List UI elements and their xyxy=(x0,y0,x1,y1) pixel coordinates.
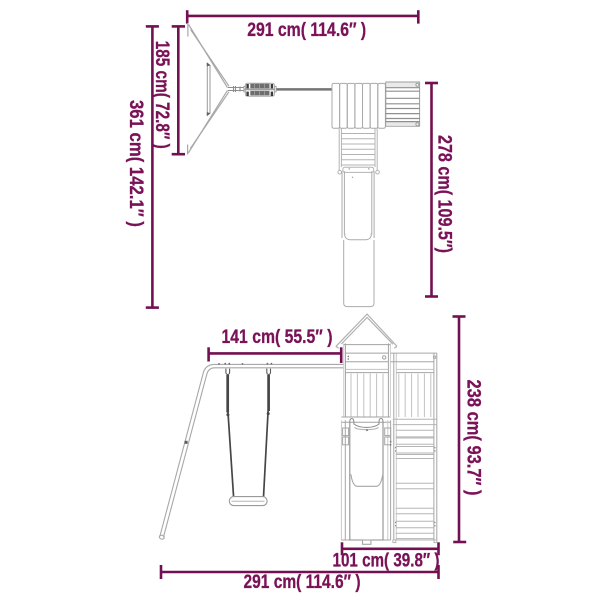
svg-text:291 cm( 114.6″ ): 291 cm( 114.6″ ) xyxy=(244,571,361,593)
svg-text:101 cm( 39.8″ ): 101 cm( 39.8″ ) xyxy=(333,550,440,572)
svg-text:141 cm( 55.5″ ): 141 cm( 55.5″ ) xyxy=(222,326,333,348)
svg-text:238 cm( 93.7″ ): 238 cm( 93.7″ ) xyxy=(463,380,485,496)
svg-text:361 cm( 142.1″ ): 361 cm( 142.1″ ) xyxy=(125,100,147,227)
svg-text:291 cm( 114.6″ ): 291 cm( 114.6″ ) xyxy=(247,19,366,41)
svg-text:185 cm( 72.8″ ): 185 cm( 72.8″ ) xyxy=(151,41,173,149)
svg-text:278 cm( 109.5″): 278 cm( 109.5″) xyxy=(434,135,456,253)
